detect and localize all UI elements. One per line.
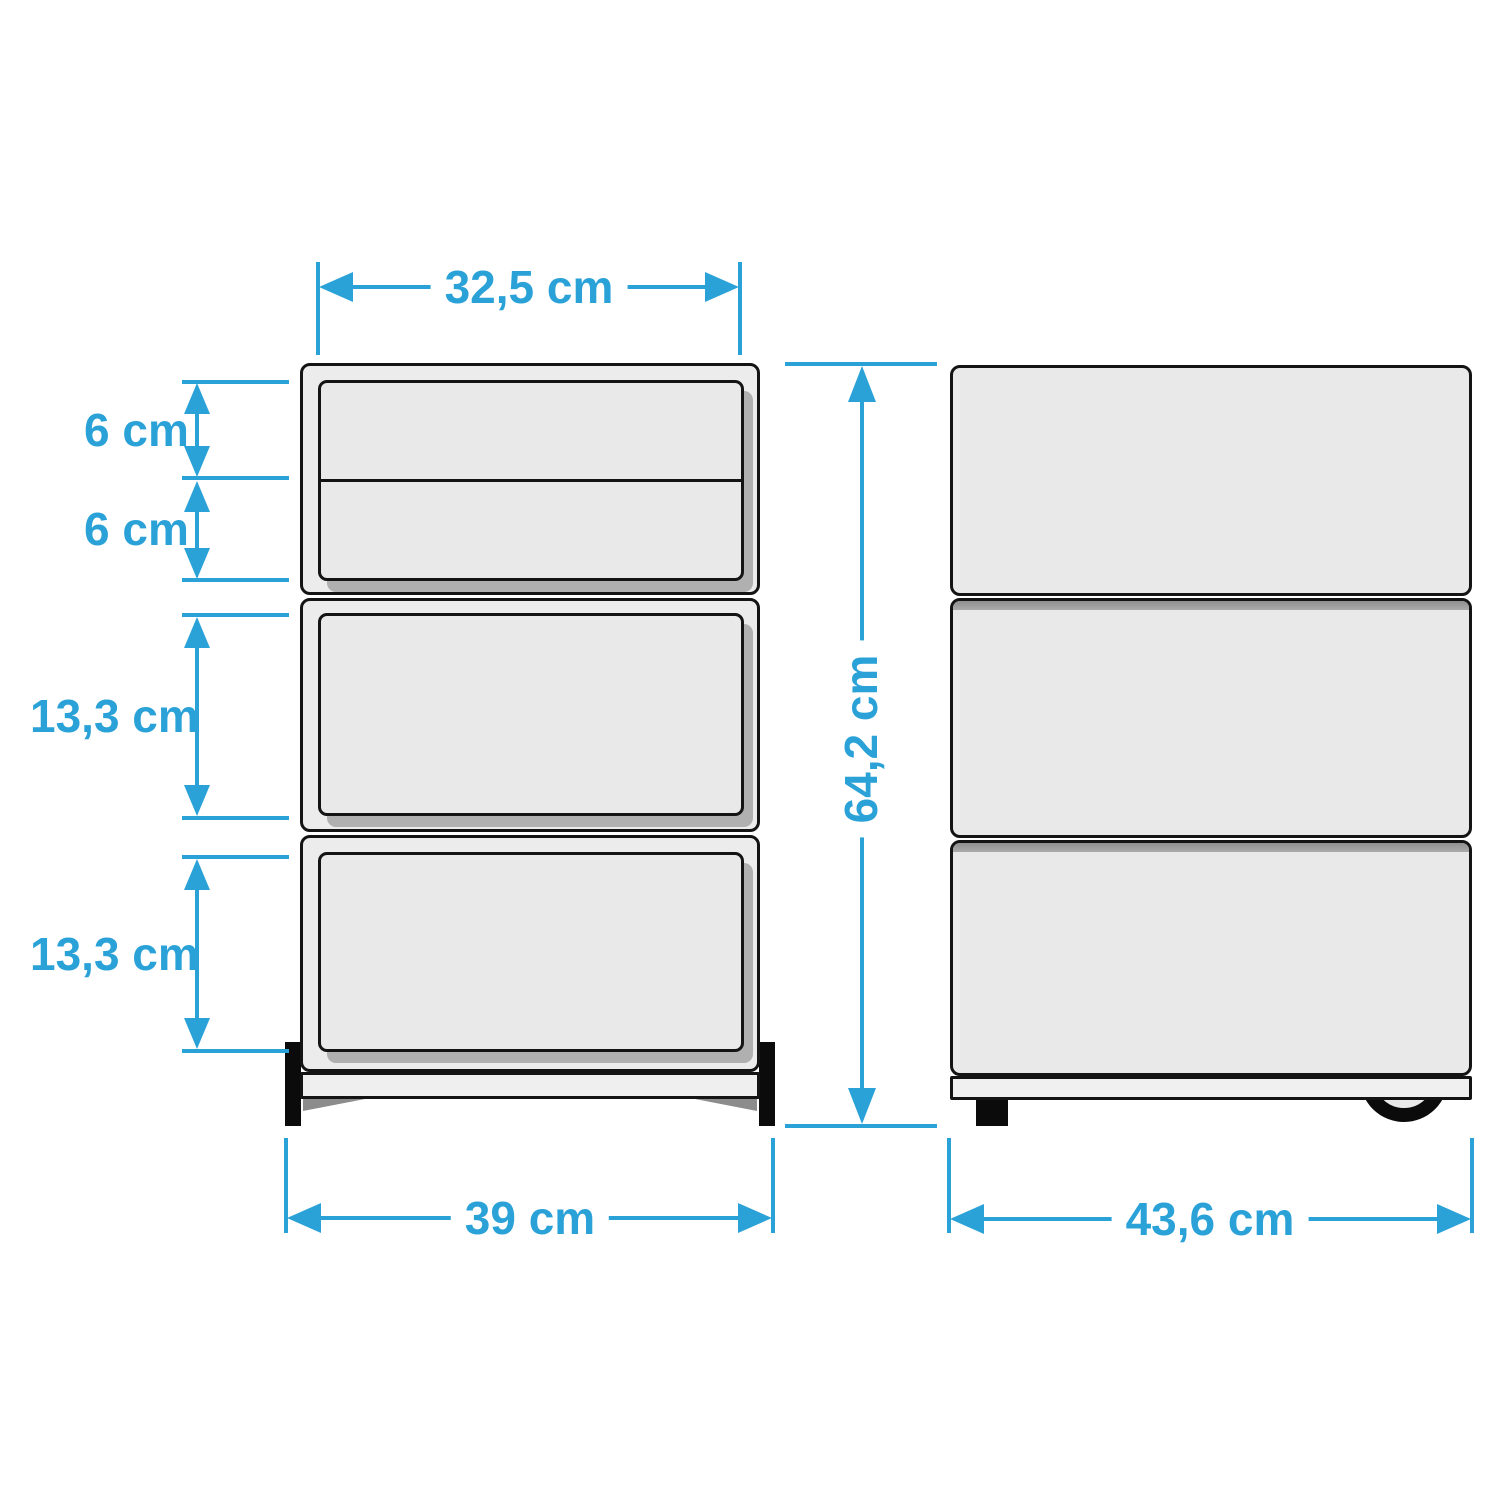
label-bottom-drawer-height: 13,3 cm	[30, 929, 199, 979]
dimension-diagram: 32,5 cm 6 cm 6 cm 13,3 cm 13,3 cm 64,2 c…	[0, 0, 1500, 1500]
label-second-small-drawer-height: 6 cm	[84, 504, 189, 554]
label-overall-width: 39 cm	[451, 1193, 609, 1243]
dimension-lines-layer	[0, 0, 1500, 1500]
label-overall-height: 64,2 cm	[836, 641, 886, 838]
label-drawer-opening-width: 32,5 cm	[431, 262, 628, 312]
label-overall-depth: 43,6 cm	[1112, 1194, 1309, 1244]
label-top-small-drawer-height: 6 cm	[84, 405, 189, 455]
label-middle-drawer-height: 13,3 cm	[30, 691, 199, 741]
